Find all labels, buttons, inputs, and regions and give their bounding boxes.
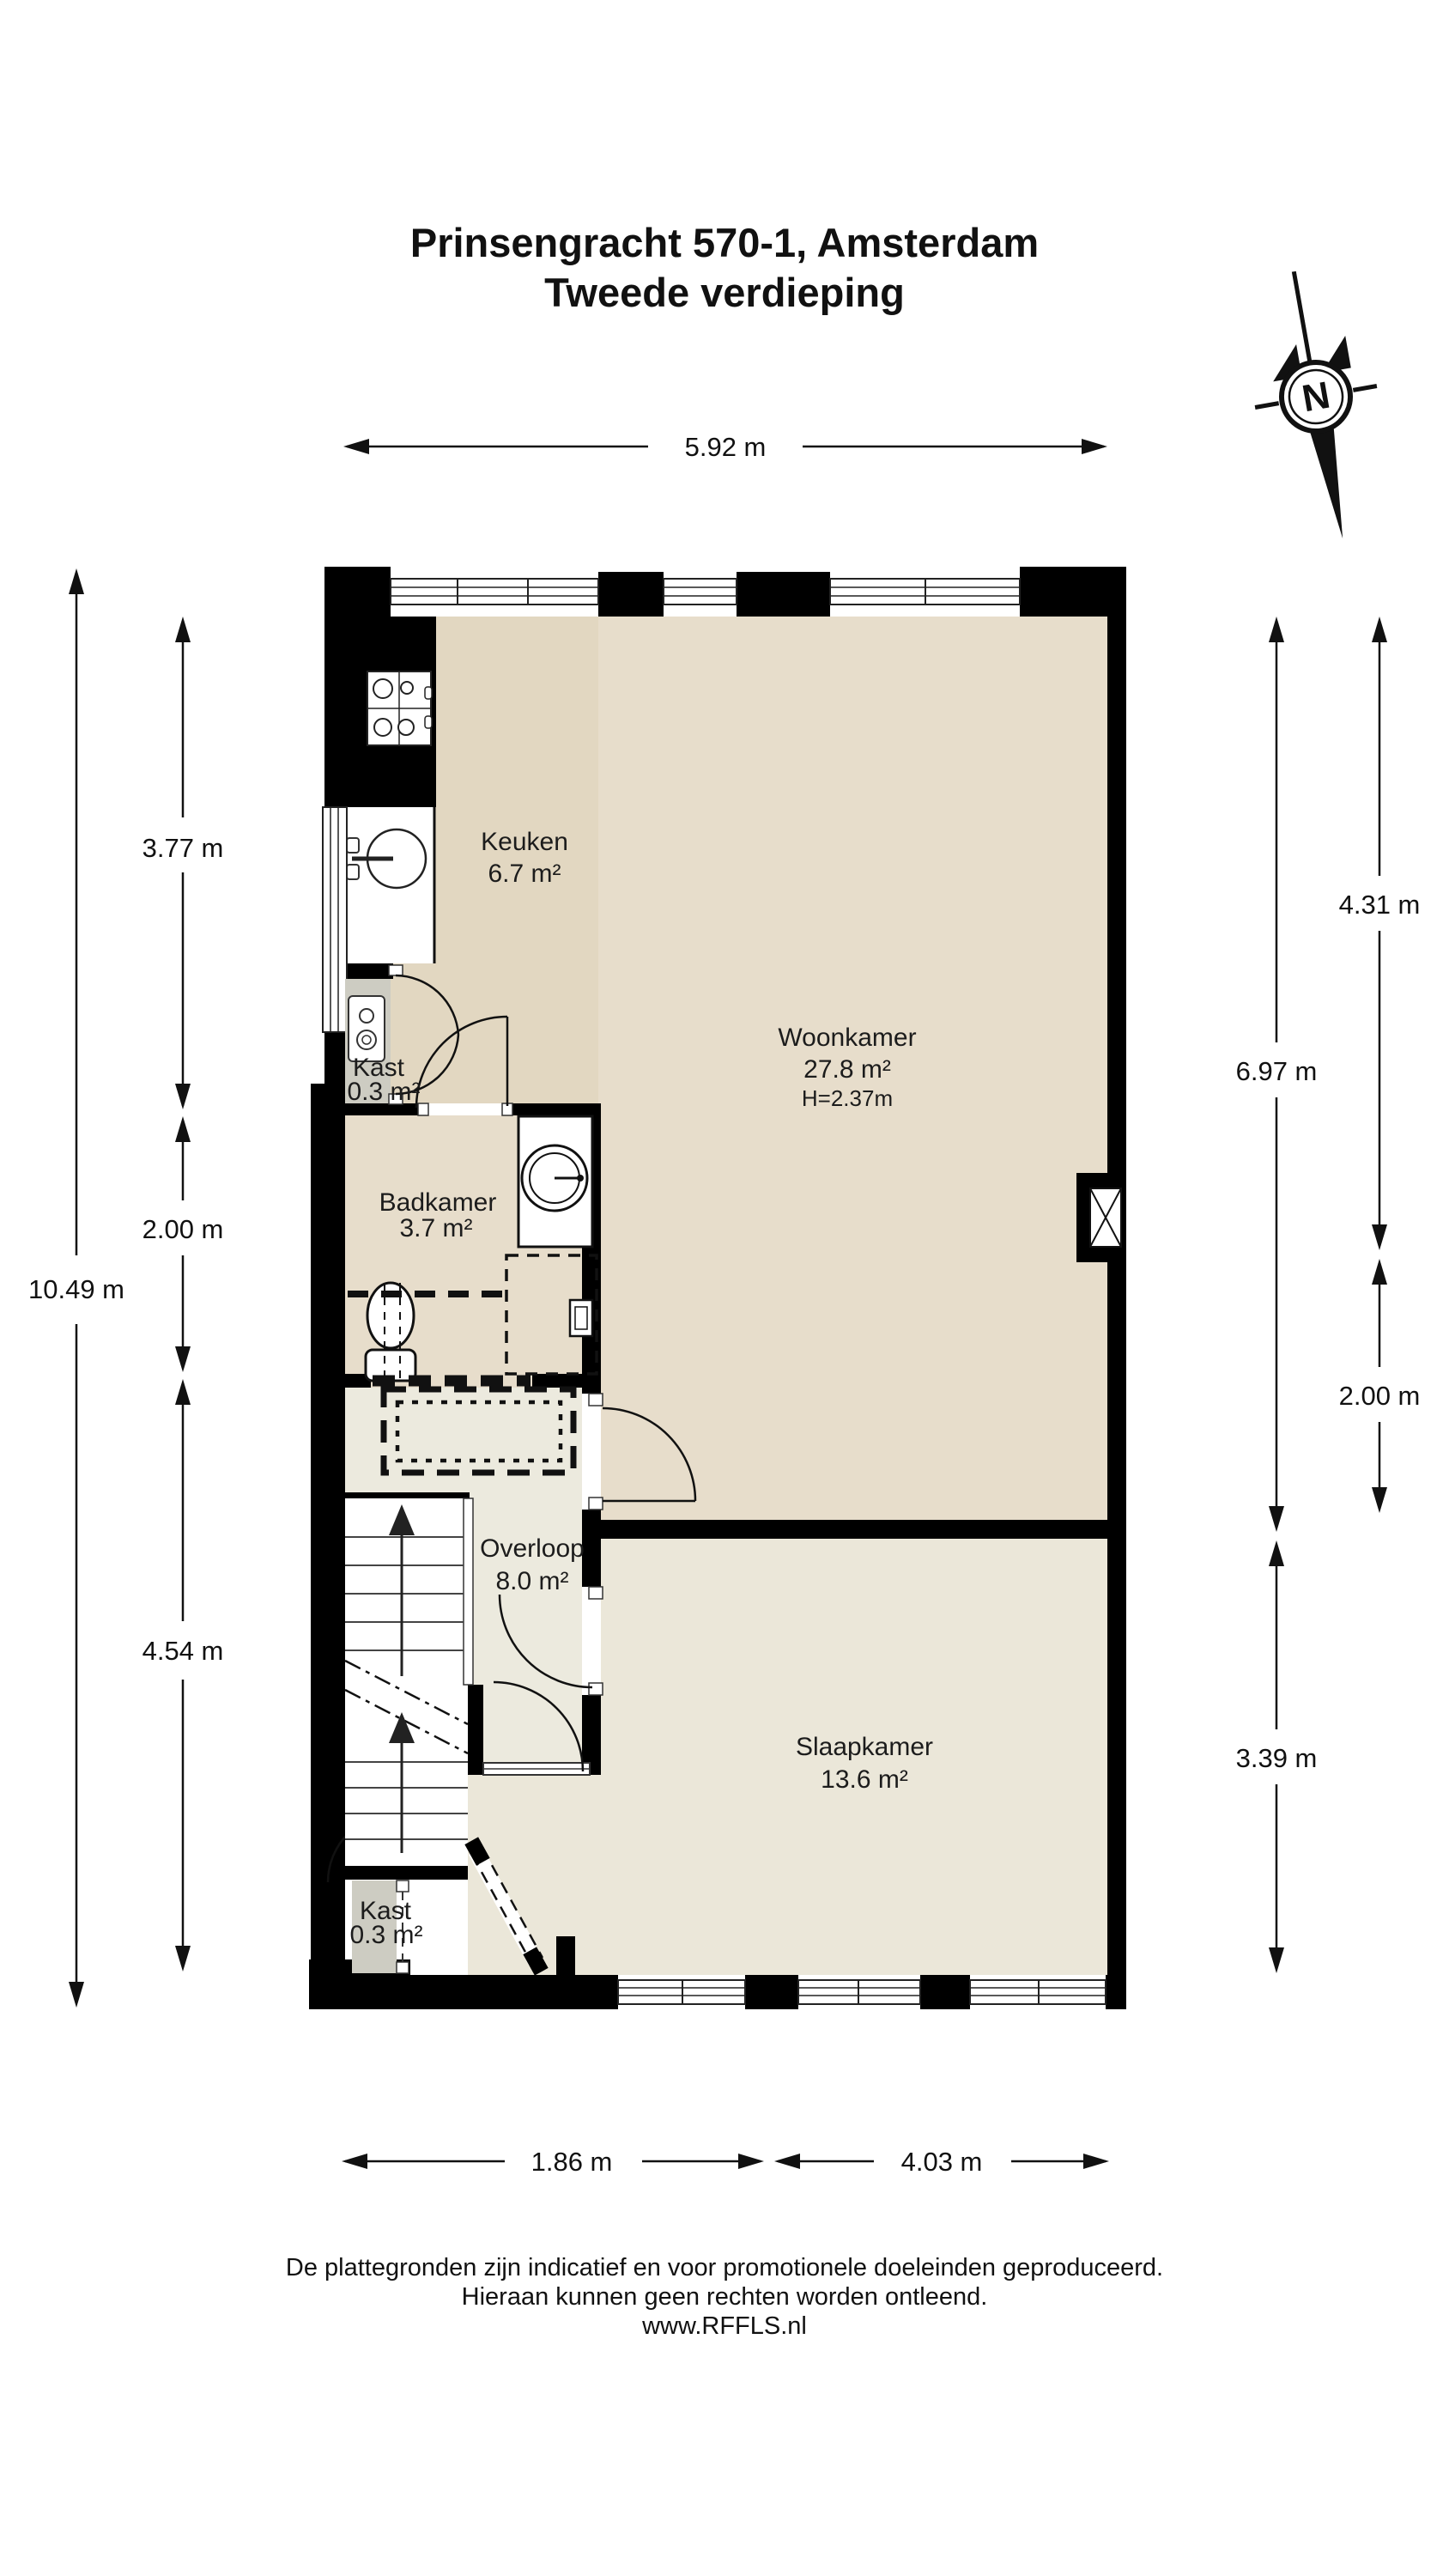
sink-icon [347, 829, 426, 888]
dim-bottom: 1.86 m 4.03 m [342, 2147, 1109, 2177]
dim-label-bottom-left: 1.86 m [531, 2147, 613, 2177]
room-label-woonkamer-height: H=2.37m [802, 1085, 893, 1111]
dim-right-inner: 6.97 m 3.39 m [1236, 617, 1318, 1973]
room-label-slaapkamer-area: 13.6 m² [821, 1765, 908, 1794]
room-label-overloop-area: 8.0 m² [495, 1567, 568, 1595]
dim-label-right-outer-lower: 2.00 m [1339, 1381, 1421, 1411]
flue-icon [1076, 1173, 1126, 1262]
disclaimer-website: www.RFFLS.nl [0, 2312, 1449, 2341]
dim-label-left-upper: 3.77 m [142, 833, 224, 863]
floorplan-page: Prinsengracht 570-1, Amsterdam Tweede ve… [0, 0, 1449, 2576]
dim-label-right-inner-lower: 3.39 m [1236, 1743, 1318, 1773]
compass-icon: N [1233, 261, 1402, 550]
room-label-overloop-name: Overloop [480, 1534, 585, 1563]
room-label-woonkamer-area: 27.8 m² [803, 1055, 891, 1084]
window-top-3 [830, 579, 1020, 605]
dim-left-outer: 10.49 m [28, 568, 124, 2008]
stove-icon [367, 671, 432, 745]
room-label-badkamer-name: Badkamer [379, 1188, 497, 1217]
window-top-1 [391, 579, 598, 605]
room-label-kast-beneden-area: 0.3 m² [349, 1921, 422, 1949]
window-bottom-3 [970, 1980, 1106, 2004]
window-bottom-2 [798, 1980, 920, 2004]
dim-label-left-middle: 2.00 m [142, 1214, 224, 1244]
window-top-2 [664, 579, 737, 605]
window-bottom-1 [618, 1980, 745, 2004]
dim-top: 5.92 m [343, 432, 1107, 462]
dim-right-outer: 4.31 m 2.00 m [1339, 617, 1421, 1513]
room-label-woonkamer-name: Woonkamer [778, 1024, 916, 1052]
dim-label-right-outer-upper: 4.31 m [1339, 890, 1421, 920]
dim-label-right-inner-upper: 6.97 m [1236, 1056, 1318, 1086]
boiler-icon [349, 996, 385, 1061]
disclaimer-line-2: Hieraan kunnen geen rechten worden ontle… [0, 2282, 1449, 2312]
room-label-badkamer-area: 3.7 m² [399, 1214, 472, 1242]
dim-label-left-lower: 4.54 m [142, 1636, 224, 1666]
disclaimer-line-1: De plattegronden zijn indicatief en voor… [0, 2253, 1449, 2282]
washing-machine-icon [518, 1116, 592, 1247]
room-label-keuken-name: Keuken [481, 828, 568, 856]
dim-label-top: 5.92 m [685, 432, 767, 462]
room-label-slaapkamer-name: Slaapkamer [796, 1733, 933, 1761]
floorplan-drawing: 5.92 m 10.49 m 3.77 m 2.0 [0, 0, 1449, 2576]
room-label-keuken-area: 6.7 m² [488, 860, 561, 888]
stairs [345, 1498, 473, 1866]
dim-label-left-total: 10.49 m [28, 1274, 124, 1304]
window-left [323, 807, 347, 1032]
dim-left-inner: 3.77 m 2.00 m 4.54 m [142, 617, 224, 1971]
room-label-kast-boven-area: 0.3 m² [347, 1078, 420, 1106]
disclaimer: De plattegronden zijn indicatief en voor… [0, 2253, 1449, 2341]
dim-label-bottom-right: 4.03 m [901, 2147, 983, 2177]
toilet-icon [366, 1283, 415, 1382]
